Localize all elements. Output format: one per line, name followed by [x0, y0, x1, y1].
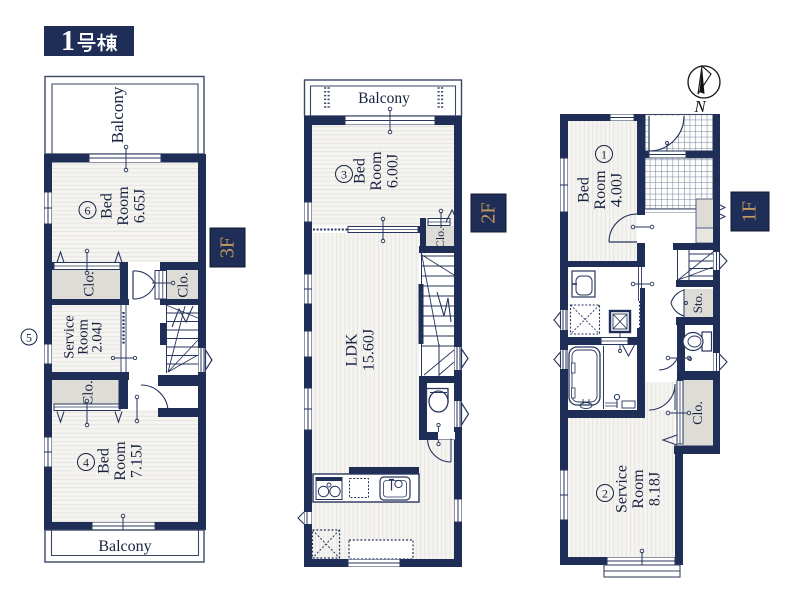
svg-text:Balcony: Balcony	[98, 538, 151, 555]
svg-text:Balcony: Balcony	[108, 86, 127, 143]
svg-text:Clo.: Clo.	[433, 228, 447, 248]
svg-text:8.18J: 8.18J	[647, 472, 664, 506]
svg-text:Room: Room	[592, 170, 609, 210]
svg-text:2.04J: 2.04J	[89, 321, 105, 352]
svg-text:Clo.: Clo.	[175, 272, 191, 297]
svg-text:Room: Room	[368, 151, 385, 191]
svg-text:Bed: Bed	[576, 177, 593, 203]
svg-text:Bed: Bed	[99, 193, 116, 219]
svg-text:1F: 1F	[739, 201, 761, 222]
svg-text:Bed: Bed	[96, 448, 113, 474]
svg-text:3F: 3F	[217, 237, 239, 258]
svg-text:6.65J: 6.65J	[132, 189, 149, 223]
svg-text:2F: 2F	[478, 202, 500, 223]
svg-text:Service: Service	[614, 465, 631, 513]
svg-text:3: 3	[341, 168, 347, 182]
svg-text:Room: Room	[115, 186, 132, 226]
svg-text:15.60J: 15.60J	[361, 329, 378, 371]
svg-text:4.00J: 4.00J	[609, 173, 626, 207]
svg-text:1: 1	[61, 26, 75, 57]
svg-text:Clo.: Clo.	[81, 271, 97, 296]
svg-text:1: 1	[601, 148, 607, 162]
svg-text:Room: Room	[630, 469, 647, 509]
svg-text:Bed: Bed	[352, 158, 369, 184]
svg-text:2: 2	[602, 487, 608, 501]
svg-text:Balcony: Balcony	[358, 90, 410, 107]
svg-text:5: 5	[26, 331, 32, 345]
svg-text:Clo.: Clo.	[691, 401, 706, 425]
svg-text:N: N	[693, 97, 707, 116]
svg-text:4: 4	[83, 456, 89, 470]
svg-text:6: 6	[85, 204, 91, 218]
svg-text:7.15J: 7.15J	[129, 444, 146, 478]
svg-text:6.00J: 6.00J	[385, 154, 402, 188]
svg-text:Room: Room	[112, 441, 129, 481]
svg-text:LDK: LDK	[344, 333, 361, 366]
svg-text:Sto.: Sto.	[690, 293, 705, 314]
